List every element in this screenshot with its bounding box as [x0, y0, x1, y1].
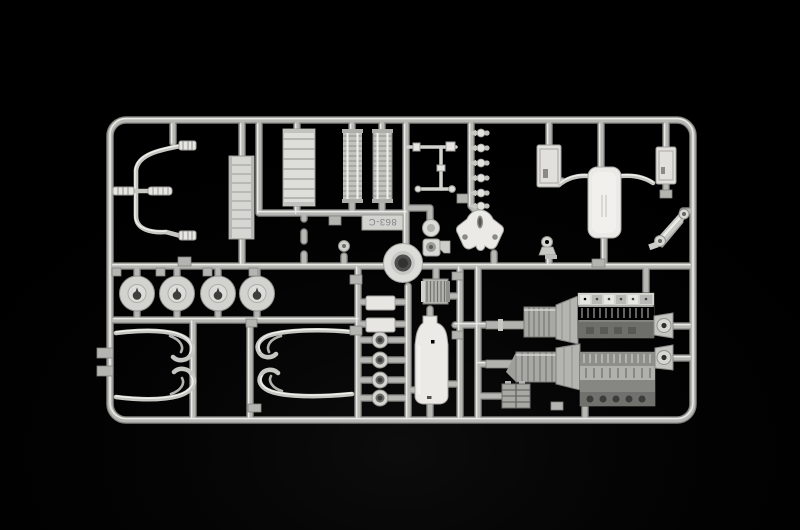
mounting-plate-lower [366, 318, 395, 332]
radiator-core [229, 156, 254, 239]
wheel-hub-disc-1 [120, 276, 155, 311]
engine-block-bottom [580, 352, 655, 406]
engine-mount-bottom [655, 345, 673, 370]
wheel-hub-disc-2 [160, 276, 195, 311]
wheel-hub-disc-4 [240, 276, 275, 311]
mold-number-tag: 863-C [362, 215, 403, 230]
small-pulley [339, 241, 350, 252]
oil-cooler [421, 279, 450, 304]
filter-cartridge-right [372, 129, 393, 203]
sprue-photo-canvas: 863-C [0, 0, 800, 530]
gearbox-bottom-shaft [486, 360, 512, 368]
engine-block-top [578, 293, 654, 338]
fuel-tank-bottle [415, 316, 448, 404]
mold-label-text: 863-C [368, 216, 396, 227]
radiator-shell-right [656, 147, 676, 184]
battery-box [502, 381, 530, 408]
mounting-plate-upper [366, 296, 395, 310]
center-ring [384, 244, 423, 283]
engine-mount-top [654, 313, 673, 338]
filter-cartridge-left [342, 129, 363, 203]
sprue-photo: 863-C [0, 0, 800, 530]
gearbox-top-shaft [486, 321, 524, 329]
radiator-shell-left [537, 145, 561, 187]
wheel-hub-disc-3 [201, 276, 236, 311]
ribbed-panel [283, 129, 315, 206]
